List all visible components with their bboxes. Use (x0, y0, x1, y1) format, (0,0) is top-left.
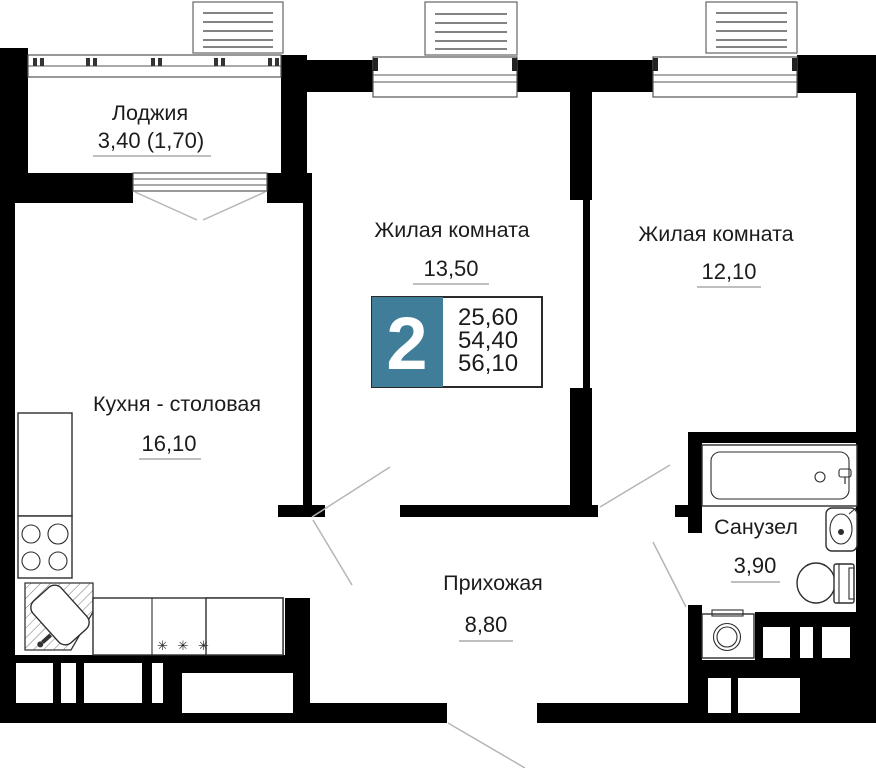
badge-area-total: 56,10 (458, 350, 518, 377)
opening (152, 663, 163, 703)
floor-plan: ✳ ✳ ✳ (0, 0, 876, 768)
room1-door-swing (312, 467, 390, 517)
label-hallway: Прихожая 8,80 (443, 571, 543, 641)
label-bathroom: Санузел 3,90 (714, 515, 798, 582)
opening (182, 673, 293, 713)
wall-segment (281, 55, 307, 173)
opening (84, 663, 142, 703)
room2-door-swing (600, 465, 670, 507)
label-loggia: Лоджия 3,40 (1,70) (93, 101, 211, 156)
bathroom-area: 3,90 (734, 553, 777, 578)
kitchen-counter-icon (18, 413, 72, 516)
apartment-badge: 2 25,60 54,40 56,10 (372, 297, 542, 387)
loggia-name: Лоджия (112, 101, 188, 125)
hallway-area: 8,80 (465, 612, 508, 637)
wall-segment (570, 92, 592, 200)
badge-room-count: 2 (386, 302, 427, 385)
kitchen-counter-bottom: ✳ ✳ ✳ (93, 598, 283, 655)
wall-segment (688, 432, 858, 443)
room2-area: 12,10 (701, 259, 756, 284)
wall-segment (285, 598, 310, 655)
washing-machine-icon (702, 610, 754, 658)
room2-name: Жилая комната (638, 222, 793, 246)
room1-area: 13,50 (423, 256, 478, 281)
wall-segment (307, 60, 373, 92)
wall-segment (583, 200, 590, 388)
opening (61, 663, 76, 703)
label-room1: Жилая комната 13,50 (374, 218, 529, 284)
window-room1 (373, 57, 517, 97)
wall-segment (570, 388, 592, 515)
wall-segment (517, 60, 653, 92)
hallway-name: Прихожая (443, 571, 543, 595)
bathroom-door-swing (653, 542, 686, 607)
shaft-opening (822, 627, 850, 658)
wall-segment (0, 203, 15, 723)
ac-unit-icon (193, 2, 283, 53)
label-room2: Жилая комната 12,10 (638, 222, 793, 287)
window-room2 (653, 57, 797, 97)
wall-segment (293, 703, 447, 723)
shaft-opening (708, 678, 731, 713)
toilet-icon (797, 563, 854, 603)
shaft-opening (763, 627, 790, 658)
room1-name: Жилая комната (374, 218, 529, 242)
hob-marks: ✳ ✳ ✳ (157, 638, 212, 653)
corner-sink-icon (25, 581, 93, 650)
kitchen-door-swing (313, 520, 352, 585)
wall-segment (303, 173, 312, 505)
loggia-area: 3,40 (1,70) (98, 128, 204, 153)
bathroom-name: Санузел (714, 515, 798, 539)
opening (16, 663, 53, 703)
wall-segment (856, 93, 876, 723)
kitchen-area: 16,10 (141, 431, 196, 456)
wall-segment (537, 703, 690, 723)
shaft-opening (800, 627, 813, 658)
stove-icon (18, 516, 72, 578)
entrance-door-swing (448, 723, 525, 768)
wall-segment (278, 505, 325, 517)
wall-segment (797, 55, 876, 93)
wall-segment (688, 443, 702, 533)
wall-segment (675, 505, 688, 517)
label-kitchen: Кухня - столовая 16,10 (93, 392, 261, 459)
ac-unit-icon (425, 2, 517, 55)
bathroom-sink-icon (826, 508, 857, 551)
balcony-door (133, 173, 267, 220)
floor-plan-svg: ✳ ✳ ✳ (0, 0, 876, 768)
kitchen-name: Кухня - столовая (93, 392, 261, 416)
wall-segment (23, 173, 133, 203)
shaft-opening (738, 678, 800, 713)
ac-unit-icon (706, 2, 797, 53)
wall-segment (400, 505, 598, 517)
loggia-glazing (28, 55, 281, 77)
bathtub-icon (702, 445, 857, 506)
